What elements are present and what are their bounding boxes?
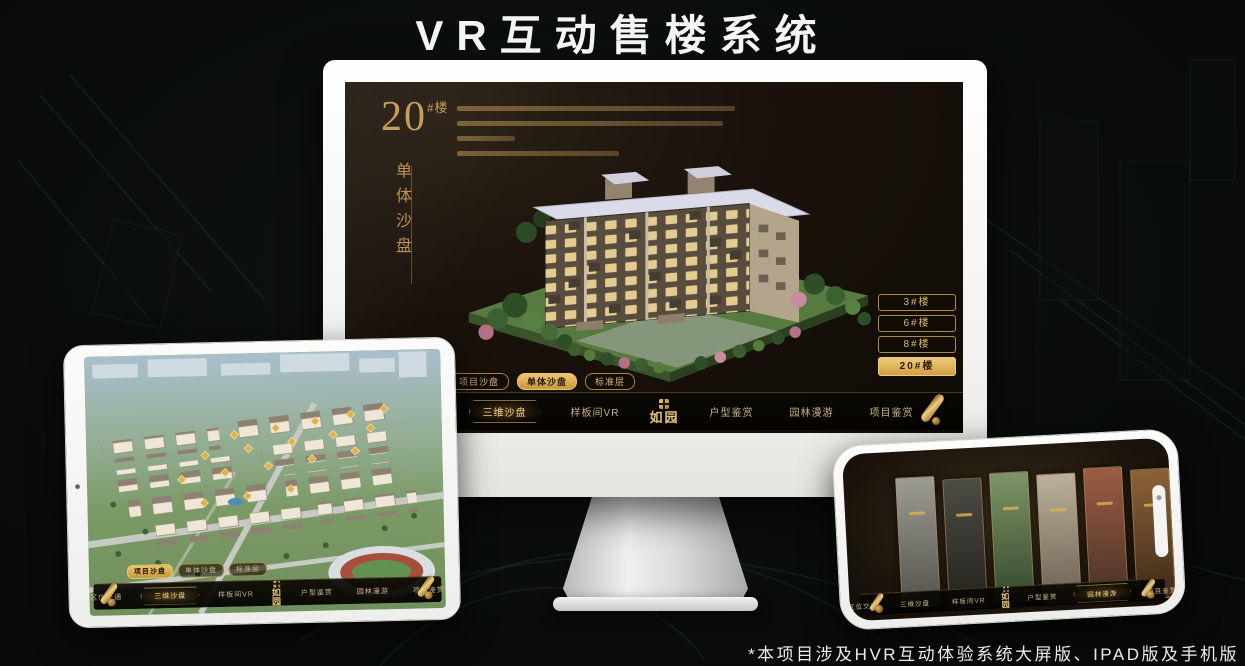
nav-item-showroom-vr[interactable]: 样板间VR [565, 402, 626, 421]
nav-item-3d-sandbox[interactable]: 三维沙盘 [140, 586, 200, 605]
building-selector: 3#楼 6#楼 8#楼 20#楼 [878, 294, 956, 376]
monitor-base [553, 597, 758, 611]
gallery-panel[interactable] [1083, 466, 1129, 598]
tablet-tab-project-sandbox[interactable]: 项目沙盘 [127, 564, 173, 579]
model-3d-viewport[interactable] [445, 144, 890, 384]
poster-canvas: VR互动售楼系统 20#楼 单体沙盘 [0, 0, 1245, 666]
brand-logo-text: 如园 [649, 411, 679, 424]
scroll-handle-icon[interactable] [105, 581, 113, 605]
seal-icon [659, 399, 669, 409]
building-button-6[interactable]: 6#楼 [878, 315, 956, 332]
nav-item-garden-tour[interactable]: 园林漫游 [1073, 582, 1132, 603]
footnote: *本项目涉及HVR互动体验系统大屏版、IPAD版及手机版 [748, 640, 1239, 665]
nav-item-3d-sandbox[interactable]: 三维沙盘 [894, 594, 937, 610]
tablet-screen: 项目沙盘 单体沙盘 标准层 区位交通 三维沙盘 样板间VR 如园 户型鉴赏 园林… [84, 349, 446, 616]
nav-item-unit-plans[interactable]: 户型鉴赏 [295, 585, 339, 600]
brand-logo-text: 如园 [272, 588, 283, 606]
headline-number: 20 [381, 94, 427, 140]
tablet-device: 项目沙盘 单体沙盘 标准层 区位交通 三维沙盘 样板间VR 如园 户型鉴赏 园林… [63, 337, 461, 629]
tablet-tab-standard-floor[interactable]: 标准层 [229, 562, 267, 577]
seal-icon [274, 580, 281, 587]
tablet-camera-dot [75, 484, 80, 489]
tablet-tab-single-sandbox[interactable]: 单体沙盘 [178, 563, 224, 578]
scroll-handle-icon[interactable] [873, 592, 880, 612]
brand-logo[interactable]: 如园 [1001, 586, 1012, 609]
building-button-20[interactable]: 20#楼 [878, 357, 956, 376]
headline-suffix: #楼 [427, 100, 449, 115]
monitor-stand [563, 495, 748, 599]
nav-item-project-gallery[interactable]: 项目鉴赏 [863, 402, 919, 421]
phone-device: 区位交通 三维沙盘 样板间VR 如园 户型鉴赏 园林漫游 项目鉴赏 [831, 428, 1186, 631]
building-button-8[interactable]: 8#楼 [878, 336, 956, 353]
floor-tabs: 项目沙盘 单体沙盘 标准层 [449, 373, 635, 390]
brand-logo[interactable]: 如园 [272, 580, 284, 606]
gallery-panel[interactable] [895, 476, 941, 608]
nav-item-showroom-vr[interactable]: 样板间VR [212, 587, 260, 602]
scroll-handle-icon[interactable] [1145, 578, 1152, 598]
brand-logo-text: 如园 [1001, 593, 1012, 610]
phone-screen: 区位交通 三维沙盘 样板间VR 如园 户型鉴赏 园林漫游 项目鉴赏 [842, 438, 1176, 622]
tab-standard-floor[interactable]: 标准层 [585, 373, 635, 390]
camera-dot [1156, 495, 1161, 500]
page-title: VR互动售楼系统 [0, 2, 1245, 63]
nav-item-garden-tour[interactable]: 园林漫游 [783, 402, 839, 421]
nav-item-unit-plans[interactable]: 户型鉴赏 [703, 402, 759, 421]
headline-subtitle-vertical: 单体沙盘 [389, 162, 413, 262]
gallery-panel[interactable] [989, 471, 1035, 603]
nav-item-garden-tour[interactable]: 园林漫游 [351, 584, 395, 599]
nav-item-3d-sandbox[interactable]: 三维沙盘 [469, 400, 541, 423]
nav-item-showroom-vr[interactable]: 样板间VR [946, 592, 992, 608]
headline-block: 20#楼 [381, 96, 449, 138]
brand-logo[interactable]: 如园 [649, 399, 679, 424]
scroll-handle-icon[interactable] [928, 392, 937, 424]
nav-item-unit-plans[interactable]: 户型鉴赏 [1021, 588, 1064, 604]
building-button-3[interactable]: 3#楼 [878, 294, 956, 311]
tab-project-sandbox[interactable]: 项目沙盘 [449, 373, 509, 390]
tab-single-sandbox[interactable]: 单体沙盘 [517, 373, 577, 390]
scroll-handle-icon[interactable] [422, 574, 430, 598]
